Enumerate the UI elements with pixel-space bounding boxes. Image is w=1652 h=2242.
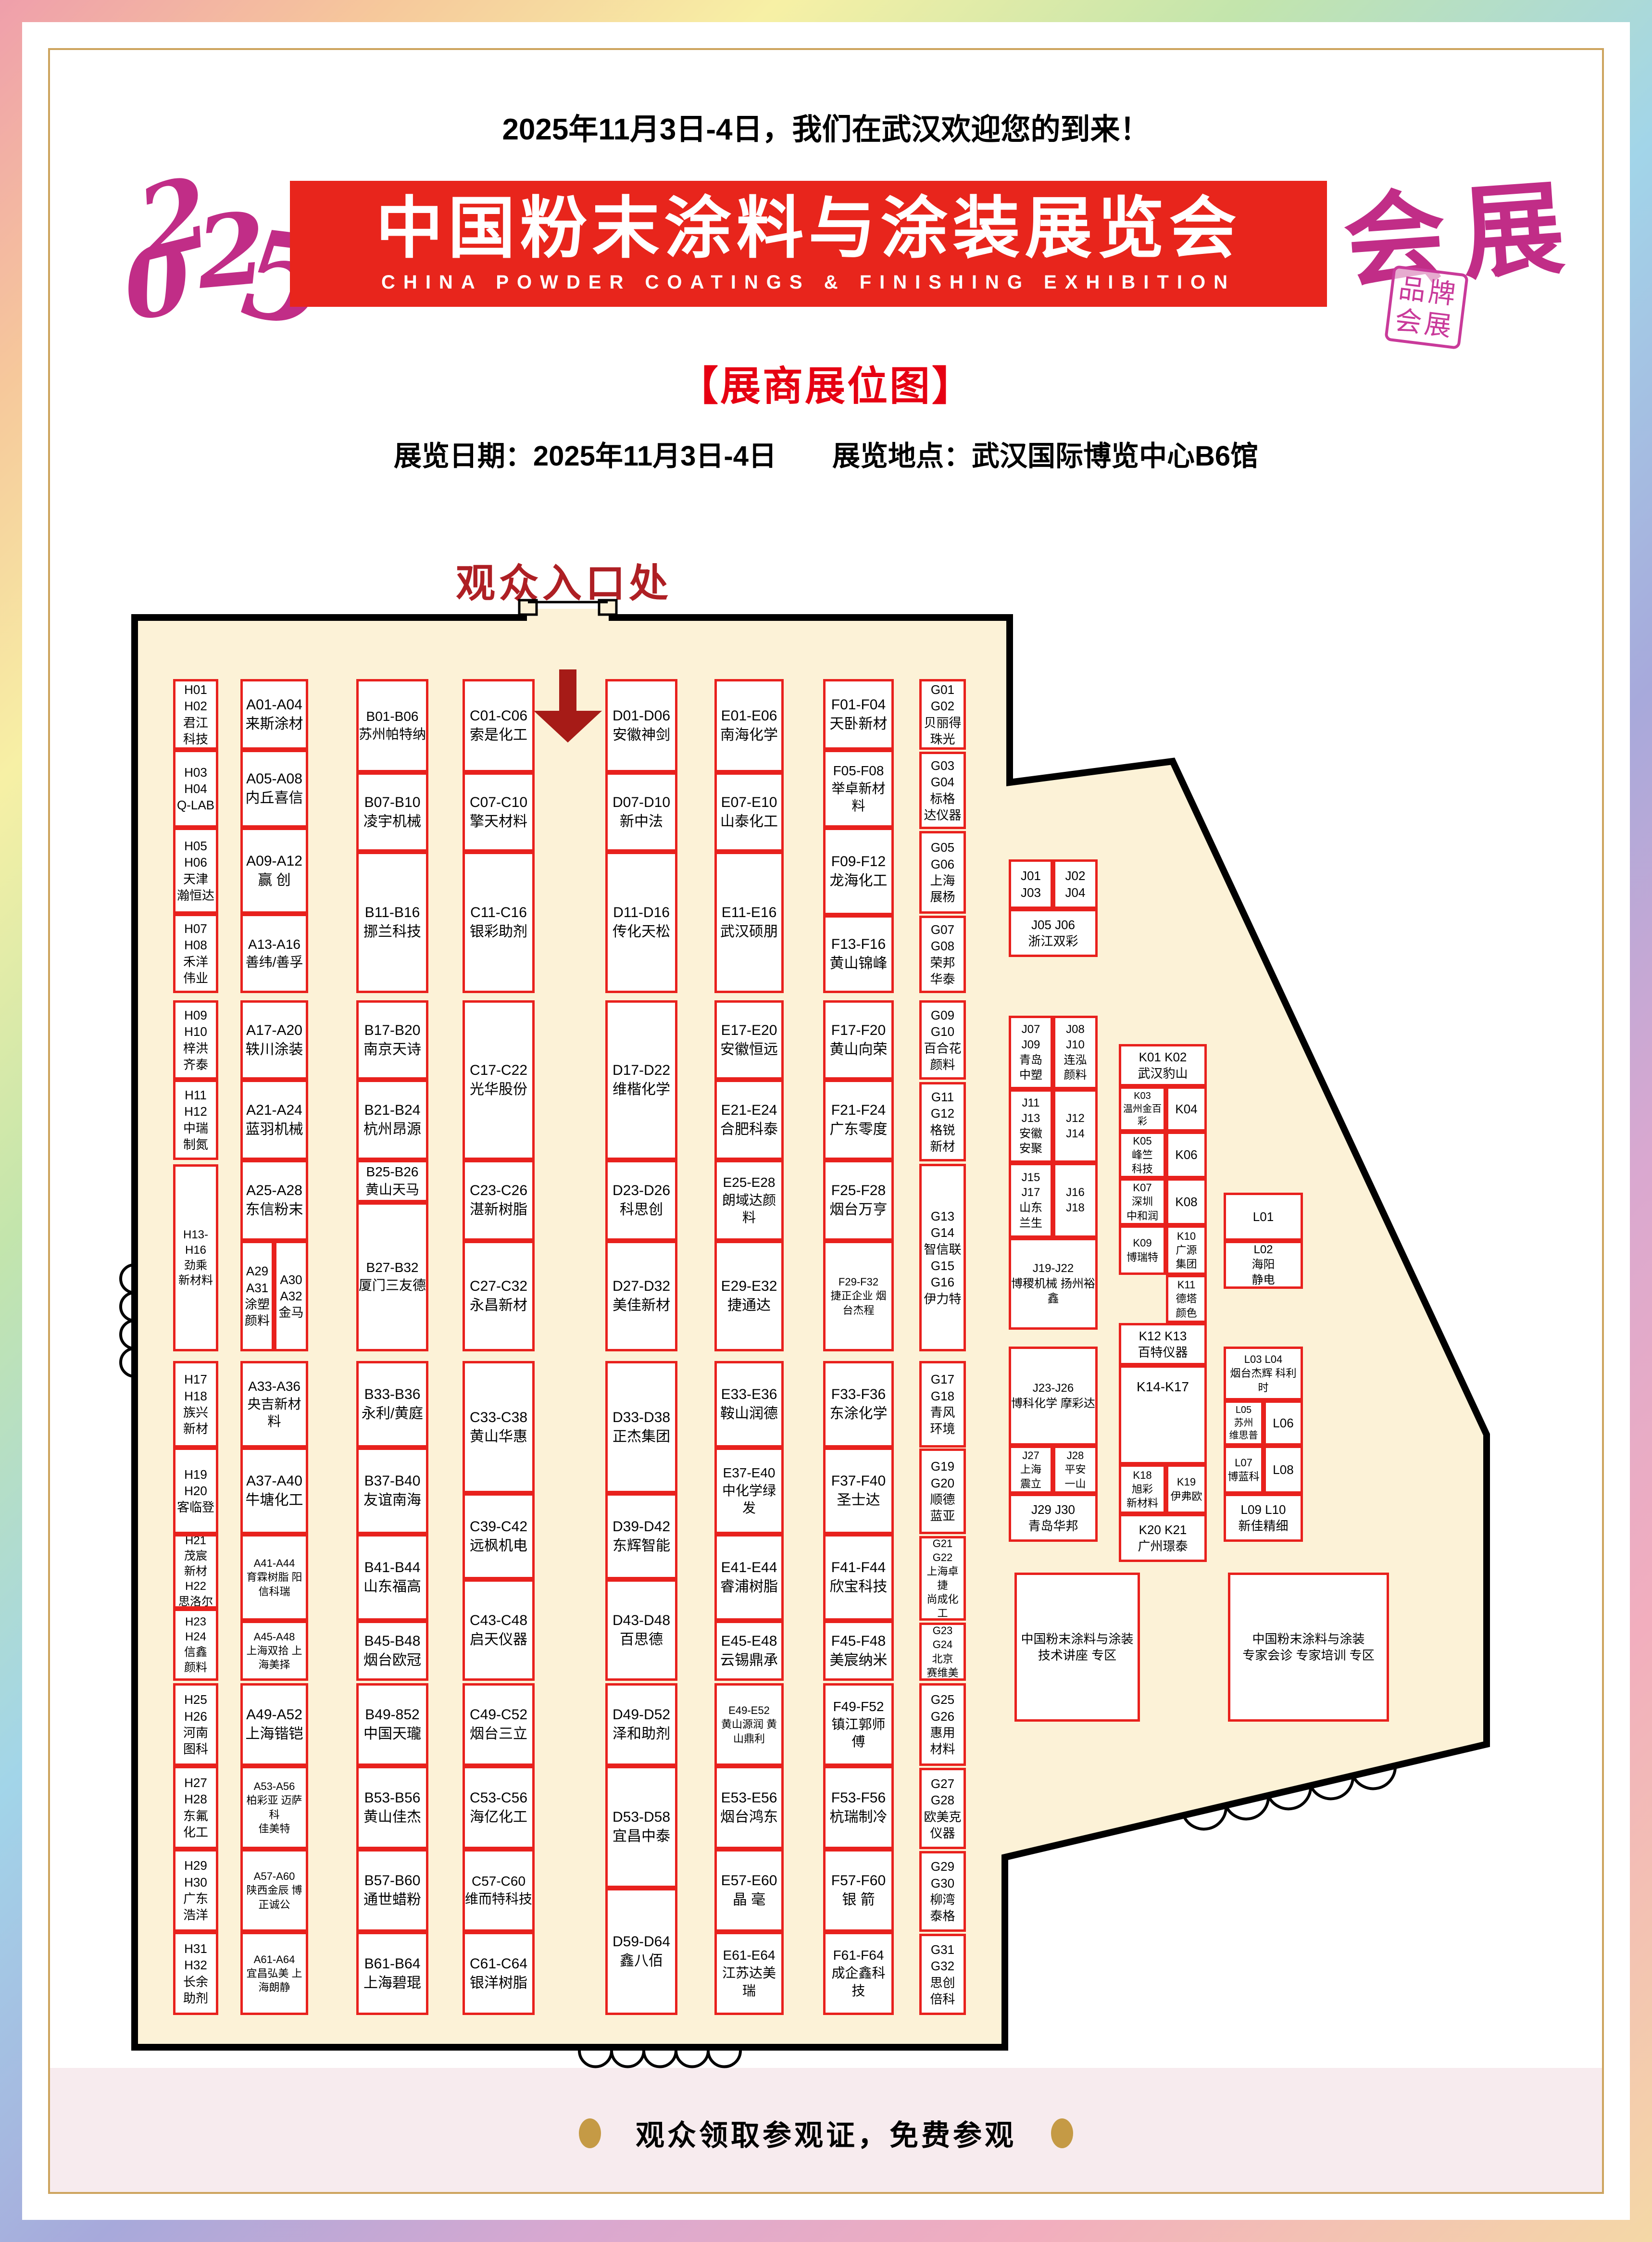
booth-label: G19 G20 顺德 蓝亚 bbox=[922, 1458, 964, 1524]
booth-label: H21 茂宸 新材 H22 思洛尔 bbox=[175, 1534, 216, 1609]
entrance-gap bbox=[527, 609, 609, 625]
booth-label: B41-B44 山东福高 bbox=[359, 1558, 426, 1596]
booth-C23-C26: C23-C26 湛新树脂 bbox=[463, 1160, 535, 1241]
booth-J19-J22: J19-J22 博稷机械 扬州裕鑫 bbox=[1009, 1238, 1098, 1330]
booth-label: B21-B24 杭州昂源 bbox=[359, 1101, 426, 1139]
booth-label: J12 J14 bbox=[1055, 1111, 1095, 1141]
booth-zone-expert: 中国粉末涂料与涂装 专家会诊 专家培训 专区 bbox=[1228, 1573, 1389, 1722]
booth-label: A57-A60 陕西金辰 博正诚公 bbox=[243, 1869, 306, 1911]
booth-label: F33-F36 东涂化学 bbox=[826, 1385, 891, 1423]
booth-E11-E16: E11-E16 武汉硕朋 bbox=[714, 852, 784, 993]
booth-L01: L01 bbox=[1224, 1193, 1303, 1241]
booth-label: C17-C22 光华股份 bbox=[465, 1061, 532, 1099]
booth-H13-H16: H13-H16 劲乘 新材料 bbox=[173, 1164, 218, 1351]
booth-K08: K08 bbox=[1166, 1178, 1207, 1225]
booth-J02-J04: J02 J04 bbox=[1053, 859, 1098, 909]
booth-label: C61-C64 银洋树脂 bbox=[465, 1954, 532, 1992]
booth-label: B57-B60 通世蜡粉 bbox=[359, 1871, 426, 1909]
booth-L06: L06 bbox=[1264, 1400, 1303, 1446]
booth-F37-F40: F37-F40 圣士达 bbox=[823, 1448, 894, 1534]
booth-K01-K02: K01 K02 武汉豹山 bbox=[1119, 1044, 1207, 1086]
footer: 观众领取参观证，免费参观 bbox=[0, 2112, 1652, 2154]
booth-J16-J18: J16 J18 bbox=[1053, 1163, 1098, 1238]
booth-J05-J06: J05 J06 浙江双彩 bbox=[1009, 909, 1098, 957]
booth-label: G05 G06 上海 展杨 bbox=[922, 839, 964, 905]
booth-label: L03 L04 烟台杰辉 科利时 bbox=[1226, 1352, 1301, 1394]
booth-label: H25 H26 河南 图科 bbox=[175, 1691, 216, 1757]
booth-label: D01-D06 安徽神剑 bbox=[608, 706, 675, 744]
booth-label: L06 bbox=[1266, 1415, 1301, 1431]
booth-label: E25-E28 朗域达颜料 bbox=[717, 1174, 781, 1227]
booth-K14-K17: K14-K17 bbox=[1119, 1365, 1207, 1464]
booth-F49-F52: F49-F52 镇江郭师傅 bbox=[823, 1683, 894, 1766]
booth-A21-A24: A21-A24 蓝羽机械 bbox=[240, 1080, 308, 1160]
booth-label: K06 bbox=[1168, 1146, 1204, 1163]
booth-A01-A04: A01-A04 来斯涂材 bbox=[240, 679, 308, 750]
booth-label: F53-F56 杭瑞制冷 bbox=[826, 1789, 891, 1826]
booth-C57-C60: C57-C60 维而特科技 bbox=[463, 1849, 535, 1932]
booth-G19-G20: G19 G20 顺德 蓝亚 bbox=[919, 1448, 966, 1534]
booth-label: 中国粉末涂料与涂装 专家会诊 专家培训 专区 bbox=[1230, 1631, 1387, 1664]
footer-notice: 观众领取参观证，免费参观 bbox=[636, 2112, 1016, 2154]
booth-label: B17-B20 南京天诗 bbox=[359, 1021, 426, 1059]
booth-label: J05 J06 浙江双彩 bbox=[1011, 917, 1095, 950]
booth-B27-B32: B27-B32 厦门三友德 bbox=[356, 1202, 428, 1351]
booth-label: F21-F24 广东零度 bbox=[826, 1101, 891, 1139]
booth-A41-A44: A41-A44 育霖树脂 阳信科瑞 bbox=[240, 1534, 308, 1621]
booth-label: D11-D16 传化天松 bbox=[608, 903, 675, 941]
booth-label: A61-A64 宜昌弘美 上海朗静 bbox=[243, 1952, 306, 1994]
booth-K07: K07 深圳 中和润 bbox=[1119, 1178, 1166, 1225]
booth-label: F29-F32 捷正企业 烟台杰程 bbox=[826, 1275, 891, 1317]
booth-G11-G12: G11 G12 格锐 新材 bbox=[919, 1082, 966, 1161]
booth-label: K19 伊弗欧 bbox=[1168, 1475, 1204, 1503]
booth-F57-F60: F57-F60 银 箭 bbox=[823, 1849, 894, 1932]
booth-C07-C10: C07-C10 擎天材料 bbox=[463, 772, 535, 852]
booth-label: E21-E24 合肥科泰 bbox=[717, 1101, 781, 1139]
booth-A49-A52: A49-A52 上海锴铠 bbox=[240, 1683, 308, 1766]
booth-L08: L08 bbox=[1264, 1446, 1303, 1494]
booth-J07-J09: J07 J09 青岛 中塑 bbox=[1009, 1016, 1053, 1089]
booth-label: G23 G24 北京 赛维美 bbox=[922, 1624, 964, 1679]
booth-label: D43-D48 百思德 bbox=[608, 1611, 675, 1649]
booth-label: A37-A40 牛塘化工 bbox=[243, 1472, 306, 1510]
booth-C33-C38: C33-C38 黄山华惠 bbox=[463, 1361, 535, 1493]
booth-E49-E52: E49-E52 黄山源润 黄山鼎利 bbox=[714, 1683, 784, 1766]
booth-L05: L05 苏州 维思普 bbox=[1224, 1400, 1264, 1446]
booth-label: J16 J18 bbox=[1055, 1185, 1095, 1215]
booth-label: F09-F12 龙海化工 bbox=[826, 852, 891, 890]
booth-C11-C16: C11-C16 银彩助剂 bbox=[463, 852, 535, 993]
booth-label: A21-A24 蓝羽机械 bbox=[243, 1101, 306, 1139]
booth-label: H27 H28 东氟 化工 bbox=[175, 1775, 216, 1840]
booth-H27-H28: H27 H28 东氟 化工 bbox=[173, 1766, 218, 1849]
booth-B37-B40: B37-B40 友谊南海 bbox=[356, 1448, 428, 1534]
booth-H31-H32: H31 H32 长余 助剂 bbox=[173, 1932, 218, 2015]
booth-K18: K18 旭彩 新材料 bbox=[1119, 1464, 1166, 1514]
booth-B25-B26: B25-B26 黄山天马 bbox=[356, 1160, 428, 1202]
booth-label: H03 H04 Q-LAB bbox=[175, 764, 216, 814]
booth-label: D49-D52 泽和助剂 bbox=[608, 1705, 675, 1743]
booth-label: G01 G02 贝丽得 珠光 bbox=[922, 681, 964, 747]
booth-label: L07 博蓝科 bbox=[1226, 1456, 1261, 1484]
booth-G05-G06: G05 G06 上海 展杨 bbox=[919, 831, 966, 914]
booth-G31-G32: G31 G32 思创 倍科 bbox=[919, 1934, 966, 2015]
booth-H01-H02: H01 H02 君江 科技 bbox=[173, 679, 218, 750]
booth-C27-C32: C27-C32 永昌新材 bbox=[463, 1241, 535, 1351]
booth-E25-E28: E25-E28 朗域达颜料 bbox=[714, 1160, 784, 1241]
booth-zone-lecture: 中国粉末涂料与涂装 技术讲座 专区 bbox=[1014, 1573, 1140, 1722]
booth-label: B61-B64 上海碧琨 bbox=[359, 1954, 426, 1992]
booth-label: E37-E40 中化学绿发 bbox=[717, 1464, 781, 1518]
booth-label: A49-A52 上海锴铠 bbox=[243, 1705, 306, 1743]
booth-label: F41-F44 欣宝科技 bbox=[826, 1558, 891, 1596]
booth-label: F49-F52 镇江郭师傅 bbox=[826, 1698, 891, 1751]
booth-L02: L02 海阳 静电 bbox=[1224, 1241, 1303, 1289]
booth-label: E41-E44 睿浦树脂 bbox=[717, 1558, 781, 1596]
booth-label: D59-D64 鑫八佰 bbox=[608, 1932, 675, 1970]
booth-B07-B10: B07-B10 凌宇机械 bbox=[356, 772, 428, 852]
booth-label: F25-F28 烟台万亨 bbox=[826, 1181, 891, 1219]
booth-D17-D22: D17-D22 维楷化学 bbox=[605, 1000, 677, 1160]
booth-F33-F36: F33-F36 东涂化学 bbox=[823, 1361, 894, 1448]
booth-label: F17-F20 黄山向荣 bbox=[826, 1021, 891, 1059]
booth-B17-B20: B17-B20 南京天诗 bbox=[356, 1000, 428, 1080]
gold-dot-icon bbox=[1051, 2118, 1073, 2148]
booth-label: D33-D38 正杰集团 bbox=[608, 1408, 675, 1446]
booth-label: E33-E36 鞍山润德 bbox=[717, 1385, 781, 1423]
booth-A30-A32: A30 A32 金马 bbox=[274, 1241, 308, 1351]
booth-label: J15 J17 山东 兰生 bbox=[1011, 1170, 1051, 1231]
booth-label: J29 J30 青岛华邦 bbox=[1011, 1501, 1095, 1535]
booth-label: H19 H20 客临登 bbox=[175, 1466, 216, 1516]
booth-label: K04 bbox=[1168, 1101, 1204, 1117]
door-mark-bottom-wall bbox=[579, 2051, 740, 2066]
booth-H09-H10: H09 H10 梓洪 齐泰 bbox=[173, 1000, 218, 1080]
booth-B01-B06: B01-B06 苏州帕特纳 bbox=[356, 679, 428, 772]
booth-label: A29 A31 涂塑 颜料 bbox=[243, 1263, 272, 1329]
booth-label: K01 K02 武汉豹山 bbox=[1121, 1049, 1204, 1082]
booth-K12-K13: K12 K13 百特仪器 bbox=[1119, 1323, 1207, 1365]
booth-F25-F28: F25-F28 烟台万亨 bbox=[823, 1160, 894, 1241]
booth-H17-H18: H17 H18 族兴 新材 bbox=[173, 1361, 218, 1448]
booth-label: D53-D58 宜昌中泰 bbox=[608, 1808, 675, 1846]
booth-label: L02 海阳 静电 bbox=[1226, 1242, 1301, 1288]
booth-label: A30 A32 金马 bbox=[276, 1272, 306, 1321]
booth-label: H05 H06 天津 瀚恒达 bbox=[175, 838, 216, 904]
booth-A05-A08: A05-A08 内丘喜信 bbox=[240, 750, 308, 828]
booth-label: K10 广源 集团 bbox=[1168, 1229, 1204, 1271]
booth-label: E29-E32 捷通达 bbox=[717, 1277, 781, 1315]
booth-label: F05-F08 举卓新材料 bbox=[826, 762, 891, 816]
booth-F05-F08: F05-F08 举卓新材料 bbox=[823, 750, 894, 828]
booth-label: A45-A48 上海双拾 上海美择 bbox=[243, 1630, 306, 1672]
booth-F09-F12: F09-F12 龙海化工 bbox=[823, 828, 894, 915]
booth-E57-E60: E57-E60 晶 毫 bbox=[714, 1849, 784, 1932]
booth-label: H29 H30 广东 浩洋 bbox=[175, 1857, 216, 1923]
booth-K11: K11 德塔 颜色 bbox=[1166, 1275, 1207, 1323]
booth-label: G25 G26 惠用 材料 bbox=[922, 1691, 964, 1757]
booth-J12-J14: J12 J14 bbox=[1053, 1089, 1098, 1163]
booth-label: J01 J03 bbox=[1011, 868, 1051, 901]
booth-F45-F48: F45-F48 美宸纳米 bbox=[823, 1621, 894, 1681]
booth-label: E07-E10 山泰化工 bbox=[717, 793, 781, 831]
booth-E53-E56: E53-E56 烟台鸿东 bbox=[714, 1766, 784, 1849]
booth-label: F01-F04 天卧新材 bbox=[826, 695, 891, 733]
booth-label: G11 G12 格锐 新材 bbox=[922, 1089, 964, 1155]
booth-label: A01-A04 来斯涂材 bbox=[243, 695, 306, 733]
booth-B33-B36: B33-B36 永利/黄庭 bbox=[356, 1361, 428, 1448]
booth-label: A17-A20 轶川涂装 bbox=[243, 1021, 306, 1059]
booth-label: B37-B40 友谊南海 bbox=[359, 1472, 426, 1510]
booth-label: C53-C56 海亿化工 bbox=[465, 1789, 532, 1826]
booth-K10: K10 广源 集团 bbox=[1166, 1225, 1207, 1275]
booth-A09-A12: A09-A12 赢 创 bbox=[240, 828, 308, 914]
booth-A25-A28: A25-A28 东信粉末 bbox=[240, 1160, 308, 1241]
booth-G03-G04: G03 G04 标格 达仪器 bbox=[919, 752, 966, 829]
booth-G25-G26: G25 G26 惠用 材料 bbox=[919, 1683, 966, 1766]
booth-label: G03 G04 标格 达仪器 bbox=[922, 757, 964, 823]
booth-label: J02 J04 bbox=[1055, 868, 1095, 901]
booth-C49-C52: C49-C52 烟台三立 bbox=[463, 1683, 535, 1766]
booth-label: C43-C48 启天仪器 bbox=[465, 1611, 532, 1649]
booth-A17-A20: A17-A20 轶川涂装 bbox=[240, 1000, 308, 1080]
booth-C61-C64: C61-C64 银洋树脂 bbox=[463, 1932, 535, 2015]
booth-D53-D58: D53-D58 宜昌中泰 bbox=[605, 1766, 677, 1888]
booth-G29-G30: G29 G30 柳湾 泰格 bbox=[919, 1851, 966, 1932]
booth-F61-F64: F61-F64 成企鑫科技 bbox=[823, 1932, 894, 2015]
booth-label: L08 bbox=[1266, 1461, 1301, 1478]
booth-label: F37-F40 圣士达 bbox=[826, 1472, 891, 1510]
booth-C43-C48: C43-C48 启天仪器 bbox=[463, 1579, 535, 1681]
booth-label: J19-J22 博稷机械 扬州裕鑫 bbox=[1011, 1261, 1095, 1307]
booth-K20-K21: K20 K21 广州璟泰 bbox=[1119, 1514, 1207, 1562]
booth-D27-D32: D27-D32 美佳新材 bbox=[605, 1241, 677, 1351]
booth-D59-D64: D59-D64 鑫八佰 bbox=[605, 1888, 677, 2015]
booth-label: K05 峰竺 科技 bbox=[1121, 1134, 1164, 1176]
booth-F17-F20: F17-F20 黄山向荣 bbox=[823, 1000, 894, 1080]
booth-label: K03 温州金百彩 bbox=[1121, 1090, 1164, 1128]
booth-label: H13-H16 劲乘 新材料 bbox=[175, 1227, 216, 1288]
booth-G27-G28: G27 G28 欧美克 仪器 bbox=[919, 1768, 966, 1849]
booth-J11-J13: J11 J13 安徽 安聚 bbox=[1009, 1089, 1053, 1163]
booth-label: A41-A44 育霖树脂 阳信科瑞 bbox=[243, 1556, 306, 1598]
booth-D33-D38: D33-D38 正杰集团 bbox=[605, 1361, 677, 1493]
booth-label: H17 H18 族兴 新材 bbox=[175, 1371, 216, 1437]
booth-B21-B24: B21-B24 杭州昂源 bbox=[356, 1080, 428, 1160]
booth-label: C57-C60 维而特科技 bbox=[465, 1873, 532, 1908]
booth-label: H01 H02 君江 科技 bbox=[175, 681, 216, 747]
booth-B61-B64: B61-B64 上海碧琨 bbox=[356, 1932, 428, 2015]
booth-B49-B52: B49-852 中国天瓏 bbox=[356, 1683, 428, 1766]
booth-label: C23-C26 湛新树脂 bbox=[465, 1181, 532, 1219]
booth-label: J23-J26 博科化学 摩彩达 bbox=[1011, 1381, 1095, 1411]
booth-G01-G02: G01 G02 贝丽得 珠光 bbox=[919, 679, 966, 750]
booth-H03-H04: H03 H04 Q-LAB bbox=[173, 750, 218, 828]
booth-K19: K19 伊弗欧 bbox=[1166, 1464, 1207, 1514]
booth-label: B07-B10 凌宇机械 bbox=[359, 793, 426, 831]
booth-E17-E20: E17-E20 安徽恒远 bbox=[714, 1000, 784, 1080]
booth-label: K18 旭彩 新材料 bbox=[1121, 1468, 1164, 1510]
booth-label: A33-A36 央吉新材料 bbox=[243, 1378, 306, 1431]
booth-J29-J30: J29 J30 青岛华邦 bbox=[1009, 1494, 1098, 1542]
booth-label: F57-F60 银 箭 bbox=[826, 1871, 891, 1909]
booth-label: F61-F64 成企鑫科技 bbox=[826, 1947, 891, 2000]
booth-label: C27-C32 永昌新材 bbox=[465, 1277, 532, 1315]
booth-K06: K06 bbox=[1166, 1132, 1207, 1178]
booth-label: G21 G22 上海卓捷 尚成化工 bbox=[922, 1537, 964, 1620]
booth-label: B25-B26 黄山天马 bbox=[359, 1163, 426, 1199]
booth-label: F45-F48 美宸纳米 bbox=[826, 1632, 891, 1670]
booth-label: K14-K17 bbox=[1121, 1378, 1204, 1396]
booth-label: B11-B16 挪兰科技 bbox=[359, 903, 426, 941]
booth-G07-G08: G07 G08 荣邦 华泰 bbox=[919, 916, 966, 993]
booth-L09-L10: L09 L10 新佳精细 bbox=[1224, 1494, 1303, 1542]
booth-A45-A48: A45-A48 上海双拾 上海美择 bbox=[240, 1621, 308, 1681]
gold-dot-icon bbox=[579, 2118, 601, 2148]
booth-F53-F56: F53-F56 杭瑞制冷 bbox=[823, 1766, 894, 1849]
booth-K03: K03 温州金百彩 bbox=[1119, 1086, 1166, 1132]
booth-E21-E24: E21-E24 合肥科泰 bbox=[714, 1080, 784, 1160]
booth-label: G29 G30 柳湾 泰格 bbox=[922, 1858, 964, 1924]
booth-label: A53-A56 柏彩亚 迈萨科 佳美特 bbox=[243, 1779, 306, 1835]
booth-label: H11 H12 中瑞 制氮 bbox=[175, 1087, 216, 1153]
booth-A57-A60: A57-A60 陕西金辰 博正诚公 bbox=[240, 1849, 308, 1932]
booth-label: C49-C52 烟台三立 bbox=[465, 1705, 532, 1743]
booth-label: F13-F16 黄山锦峰 bbox=[826, 935, 891, 973]
booth-label: C11-C16 银彩助剂 bbox=[465, 903, 532, 941]
booth-D49-D52: D49-D52 泽和助剂 bbox=[605, 1683, 677, 1766]
booth-B53-B56: B53-B56 黄山佳杰 bbox=[356, 1766, 428, 1849]
booth-label: D23-D26 科思创 bbox=[608, 1181, 675, 1219]
booth-E33-E36: E33-E36 鞍山润德 bbox=[714, 1361, 784, 1448]
booth-label: E17-E20 安徽恒远 bbox=[717, 1021, 781, 1059]
booth-B11-B16: B11-B16 挪兰科技 bbox=[356, 852, 428, 993]
booth-label: H23 H24 信鑫 颜料 bbox=[175, 1614, 216, 1675]
booth-E01-E06: E01-E06 南海化学 bbox=[714, 679, 784, 772]
booth-F41-F44: F41-F44 欣宝科技 bbox=[823, 1534, 894, 1621]
booth-label: J07 J09 青岛 中塑 bbox=[1011, 1022, 1051, 1083]
booth-label: K20 K21 广州璟泰 bbox=[1121, 1522, 1204, 1555]
booth-label: G13 G14 智信联 G15 G16 伊力特 bbox=[922, 1208, 964, 1307]
booth-label: B53-B56 黄山佳杰 bbox=[359, 1789, 426, 1826]
booth-A53-A56: A53-A56 柏彩亚 迈萨科 佳美特 bbox=[240, 1766, 308, 1849]
booth-E07-E10: E07-E10 山泰化工 bbox=[714, 772, 784, 852]
booth-label: L01 bbox=[1226, 1209, 1301, 1225]
booth-K04: K04 bbox=[1166, 1086, 1207, 1132]
booth-label: J11 J13 安徽 安聚 bbox=[1011, 1096, 1051, 1157]
booth-D11-D16: D11-D16 传化天松 bbox=[605, 852, 677, 993]
booth-G09-G10: G09 G10 百合花 颜料 bbox=[919, 1000, 966, 1080]
booth-E37-E40: E37-E40 中化学绿发 bbox=[714, 1448, 784, 1534]
booth-A13-A16: A13-A16 善纬/善孚 bbox=[240, 914, 308, 993]
booth-H21-H22: H21 茂宸 新材 H22 思洛尔 bbox=[173, 1534, 218, 1609]
booth-E45-E48: E45-E48 云锡鼎承 bbox=[714, 1621, 784, 1681]
booth-D23-D26: D23-D26 科思创 bbox=[605, 1160, 677, 1241]
booth-label: E01-E06 南海化学 bbox=[717, 706, 781, 744]
booth-C01-C06: C01-C06 索是化工 bbox=[463, 679, 535, 772]
booth-F29-F32: F29-F32 捷正企业 烟台杰程 bbox=[823, 1241, 894, 1351]
booth-label: E49-E52 黄山源润 黄山鼎利 bbox=[717, 1703, 781, 1745]
booth-H23-H24: H23 H24 信鑫 颜料 bbox=[173, 1609, 218, 1681]
booth-A61-A64: A61-A64 宜昌弘美 上海朗静 bbox=[240, 1932, 308, 2015]
booth-label: B33-B36 永利/黄庭 bbox=[359, 1385, 426, 1423]
booth-label: D17-D22 维楷化学 bbox=[608, 1061, 675, 1099]
booth-H07-H08: H07 H08 禾洋 伟业 bbox=[173, 914, 218, 993]
booth-label: E53-E56 烟台鸿东 bbox=[717, 1789, 781, 1826]
booth-label: E45-E48 云锡鼎承 bbox=[717, 1632, 781, 1670]
booth-H25-H26: H25 H26 河南 图科 bbox=[173, 1683, 218, 1766]
booth-G17-G18: G17 G18 青风 环境 bbox=[919, 1361, 966, 1448]
booth-label: C01-C06 索是化工 bbox=[465, 706, 532, 744]
booth-L03-L04: L03 L04 烟台杰辉 科利时 bbox=[1224, 1347, 1303, 1400]
booth-B41-B44: B41-B44 山东福高 bbox=[356, 1534, 428, 1621]
booth-label: H31 H32 长余 助剂 bbox=[175, 1940, 216, 2006]
booth-G23-G24: G23 G24 北京 赛维美 bbox=[919, 1623, 966, 1681]
booth-label: A09-A12 赢 创 bbox=[243, 852, 306, 890]
booth-D39-D42: D39-D42 东辉智能 bbox=[605, 1493, 677, 1579]
booth-label: K12 K13 百特仪器 bbox=[1121, 1328, 1204, 1361]
booth-F21-F24: F21-F24 广东零度 bbox=[823, 1080, 894, 1160]
booth-label: C39-C42 远枫机电 bbox=[465, 1517, 532, 1555]
booth-F01-F04: F01-F04 天卧新材 bbox=[823, 679, 894, 750]
booth-H19-H20: H19 H20 客临登 bbox=[173, 1448, 218, 1534]
booth-A29-A31: A29 A31 涂塑 颜料 bbox=[240, 1241, 274, 1351]
booth-label: E61-E64 江苏达美瑞 bbox=[717, 1947, 781, 2000]
booth-label: B49-852 中国天瓏 bbox=[359, 1705, 426, 1743]
booth-label: 中国粉末涂料与涂装 技术讲座 专区 bbox=[1017, 1631, 1138, 1664]
booth-label: G17 G18 青风 环境 bbox=[922, 1371, 964, 1437]
booth-E29-E32: E29-E32 捷通达 bbox=[714, 1241, 784, 1351]
booth-label: K11 德塔 颜色 bbox=[1168, 1278, 1204, 1320]
booth-E61-E64: E61-E64 江苏达美瑞 bbox=[714, 1932, 784, 2015]
booth-label: K07 深圳 中和润 bbox=[1121, 1181, 1164, 1222]
poster-page: 2025年11月3日-4日，我们在武汉欢迎您的到来！ 2 0 2 5 中国粉末涂… bbox=[0, 0, 1652, 2242]
booth-label: B01-B06 苏州帕特纳 bbox=[359, 708, 426, 743]
booth-D01-D06: D01-D06 安徽神剑 bbox=[605, 679, 677, 772]
booth-label: H07 H08 禾洋 伟业 bbox=[175, 920, 216, 986]
booth-J08-J10: J08 J10 连泓 颜料 bbox=[1053, 1016, 1098, 1089]
booth-H29-H30: H29 H30 广东 浩洋 bbox=[173, 1849, 218, 1932]
booth-label: B27-B32 厦门三友德 bbox=[359, 1259, 426, 1295]
booth-label: J08 J10 连泓 颜料 bbox=[1055, 1022, 1095, 1083]
booth-label: B45-B48 烟台欧冠 bbox=[359, 1632, 426, 1670]
booth-J01-J03: J01 J03 bbox=[1009, 859, 1053, 909]
booth-H05-H06: H05 H06 天津 瀚恒达 bbox=[173, 828, 218, 914]
booth-label: K08 bbox=[1168, 1194, 1204, 1210]
booth-label: A05-A08 内丘喜信 bbox=[243, 769, 306, 807]
booth-label: C07-C10 擎天材料 bbox=[465, 793, 532, 831]
booth-J28: J28 平安 一山 bbox=[1053, 1446, 1098, 1494]
booth-label: A13-A16 善纬/善孚 bbox=[243, 936, 306, 971]
booth-label: E57-E60 晶 毫 bbox=[717, 1871, 781, 1909]
booth-G21-G22: G21 G22 上海卓捷 尚成化工 bbox=[919, 1536, 966, 1621]
booth-label: G31 G32 思创 倍科 bbox=[922, 1941, 964, 2007]
booth-label: E11-E16 武汉硕朋 bbox=[717, 903, 781, 941]
booth-label: D39-D42 东辉智能 bbox=[608, 1517, 675, 1555]
booth-C39-C42: C39-C42 远枫机电 bbox=[463, 1493, 535, 1579]
booth-L07: L07 博蓝科 bbox=[1224, 1446, 1264, 1494]
booth-B57-B60: B57-B60 通世蜡粉 bbox=[356, 1849, 428, 1932]
booth-label: K09 博瑞特 bbox=[1121, 1236, 1164, 1264]
booth-label: G27 G28 欧美克 仪器 bbox=[922, 1776, 964, 1841]
booth-F13-F16: F13-F16 黄山锦峰 bbox=[823, 915, 894, 993]
booth-H11-H12: H11 H12 中瑞 制氮 bbox=[173, 1080, 218, 1160]
booth-D43-D48: D43-D48 百思德 bbox=[605, 1579, 677, 1681]
booth-label: D27-D32 美佳新材 bbox=[608, 1277, 675, 1315]
booth-J15-J17: J15 J17 山东 兰生 bbox=[1009, 1163, 1053, 1238]
booth-label: J27 上海 震立 bbox=[1011, 1448, 1051, 1490]
